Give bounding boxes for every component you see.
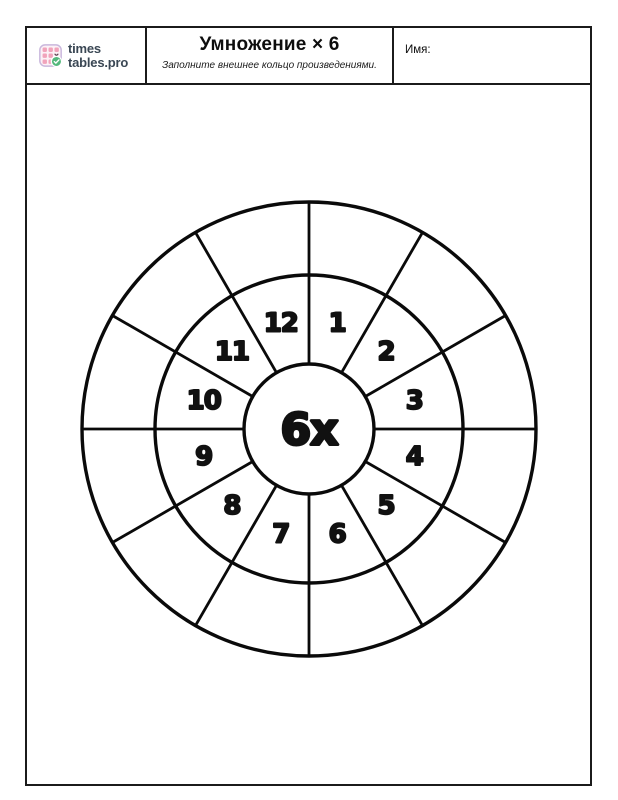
multiplication-wheel: 1234567891011126x bbox=[0, 0, 618, 800]
sector-number-9: 9 bbox=[195, 442, 212, 472]
sector-number-8: 8 bbox=[223, 491, 240, 521]
sector-number-2: 2 bbox=[378, 337, 395, 367]
sector-number-3: 3 bbox=[406, 386, 423, 416]
sector-number-7: 7 bbox=[272, 519, 289, 549]
sector-number-1: 1 bbox=[329, 309, 346, 339]
wheel-center-label: 6x bbox=[281, 405, 339, 456]
sector-number-11: 11 bbox=[215, 337, 249, 367]
sector-number-4: 4 bbox=[406, 442, 423, 472]
worksheet-page: times tables.pro Умножение × 6 Заполните… bbox=[0, 0, 618, 800]
sector-number-12: 12 bbox=[264, 309, 298, 339]
sector-number-10: 10 bbox=[187, 386, 221, 416]
sector-number-6: 6 bbox=[329, 519, 346, 549]
sector-number-5: 5 bbox=[378, 491, 395, 521]
